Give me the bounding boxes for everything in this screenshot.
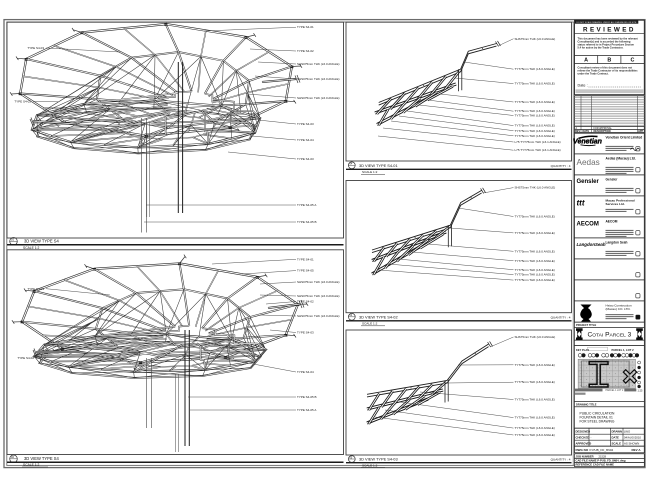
svg-text:TYT75mm THK (L6.0 ANGLE): TYT75mm THK (L6.0 ANGLE) xyxy=(515,268,555,272)
svg-text:AECOM: AECOM xyxy=(577,222,599,228)
svg-text:TYT75mm THK (L6.0 ANGLE): TYT75mm THK (L6.0 ANGLE) xyxy=(515,278,555,282)
svg-text:Services Ltd.: Services Ltd. xyxy=(606,202,625,206)
svg-text:PARCEL 1, LOT 2: PARCEL 1, LOT 2 xyxy=(612,348,635,352)
svg-text:DO NOT SCALE DRAWING. VERIFY A: DO NOT SCALE DRAWING. VERIFY ALL DIMENSI… xyxy=(577,21,637,24)
svg-text:CHECKED: CHECKED xyxy=(576,436,590,440)
svg-text:-: - xyxy=(591,442,592,446)
svg-text:Gensler: Gensler xyxy=(606,177,619,181)
svg-text:21528: 21528 xyxy=(599,454,607,458)
svg-text:SHS075mm THK (L6.0 ANGLE): SHS075mm THK (L6.0 ANGLE) xyxy=(297,314,339,318)
svg-text:REFERENCE CAD FILE NAME: REFERENCE CAD FILE NAME xyxy=(576,463,615,467)
svg-text:TYT75mm THK (L6.0 ANGLE): TYT75mm THK (L6.0 ANGLE) xyxy=(515,273,555,277)
svg-text:DATE: DATE xyxy=(612,436,620,440)
svg-text:A: A xyxy=(584,58,588,64)
svg-text:LangdonSeah: LangdonSeah xyxy=(577,242,606,247)
svg-text:TYPE S4-05 B: TYPE S4-05 B xyxy=(297,220,317,224)
svg-text:SHS075mm THK (L6.0 ANGLE): SHS075mm THK (L6.0 ANGLE) xyxy=(297,62,339,66)
svg-text:TYPE S4-03: TYPE S4-03 xyxy=(297,331,314,335)
svg-text:APPROVED: APPROVED xyxy=(576,442,592,446)
svg-text:TYPE S4-04: TYPE S4-04 xyxy=(297,370,314,374)
svg-text:TYPE S4-05: TYPE S4-05 xyxy=(297,269,314,273)
svg-text:COTAI PARCEL 3: COTAI PARCEL 3 xyxy=(587,331,631,338)
svg-text:SHS075mm THK (L6.0 ANGLE): SHS075mm THK (L6.0 ANGLE) xyxy=(297,280,339,284)
svg-text:04/AUG/2010: 04/AUG/2010 xyxy=(624,436,641,440)
svg-text:SCALE 1:2: SCALE 1:2 xyxy=(23,463,39,467)
svg-text:Date :: Date : xyxy=(578,84,588,88)
svg-text:TYT75mm THK (L6.0 ANGLE): TYT75mm THK (L6.0 ANGLE) xyxy=(515,249,555,253)
svg-text:SHS075mm THK (L6.0 ANGLE): SHS075mm THK (L6.0 ANGLE) xyxy=(297,77,339,81)
svg-text:TYPE S4-02: TYPE S4-02 xyxy=(17,356,34,360)
svg-text:Venetian Orient Limited: Venetian Orient Limited xyxy=(606,136,643,140)
svg-text:TYPE S4-02: TYPE S4-02 xyxy=(14,100,31,104)
svg-text:TYT75mm THK (L6.0 ANGLE): TYT75mm THK (L6.0 ANGLE) xyxy=(515,82,555,86)
svg-text:TYT75mm THK (L6.0 ANGLE): TYT75mm THK (L6.0 ANGLE) xyxy=(515,129,555,133)
svg-text:TYT75mm THK (L6.0 ANGLE): TYT75mm THK (L6.0 ANGLE) xyxy=(515,124,555,128)
svg-text:Langdon Seah: Langdon Seah xyxy=(606,240,628,244)
svg-text:(Macau) CO. LTD.: (Macau) CO. LTD. xyxy=(606,307,631,311)
svg-text:ttt: ttt xyxy=(577,199,585,208)
svg-text:TYT75mm THK (L6.0 ANGLE): TYT75mm THK (L6.0 ANGLE) xyxy=(515,114,555,118)
svg-text:SCALE 1:2: SCALE 1:2 xyxy=(362,170,378,174)
svg-text:PROJECT TITLE: PROJECT TITLE xyxy=(576,323,596,327)
svg-text:DRAWING TITLE: DRAWING TITLE xyxy=(576,403,597,407)
svg-text:-: - xyxy=(591,436,592,440)
svg-text:TYT75mm THK (L6.0 ANGLE): TYT75mm THK (L6.0 ANGLE) xyxy=(515,416,555,420)
svg-text:Aedas: Aedas xyxy=(577,158,600,167)
svg-text:TYT75mm THK (L6.0 ANGLE): TYT75mm THK (L6.0 ANGLE) xyxy=(515,426,555,430)
svg-text:TYT75mm THK (L6.0 ANGLE): TYT75mm THK (L6.0 ANGLE) xyxy=(515,134,555,138)
svg-text:QUANTITY : 4: QUANTITY : 4 xyxy=(551,315,571,319)
svg-text:SHS75mm THK (L6.0 ANGLE): SHS75mm THK (L6.0 ANGLE) xyxy=(515,335,556,339)
svg-text:L75 TYT75mm THK (L6.1 ANGLE): L75 TYT75mm THK (L6.1 ANGLE) xyxy=(515,140,561,144)
svg-text:SCALE 1:2: SCALE 1:2 xyxy=(23,246,39,250)
svg-text:P-PUB_FD_8N04: P-PUB_FD_8N04 xyxy=(590,448,614,452)
svg-text:QUANTITY : 4: QUANTITY : 4 xyxy=(551,164,571,168)
svg-text:REV A: REV A xyxy=(632,448,642,452)
svg-text:DATE: DATE xyxy=(583,130,590,133)
svg-text:Aedas (Macau) Ltd.: Aedas (Macau) Ltd. xyxy=(606,156,636,160)
svg-text:TYPE S4-03: TYPE S4-03 xyxy=(27,46,44,50)
svg-text:TYT75mm THK (L6.0 ANGLE): TYT75mm THK (L6.0 ANGLE) xyxy=(515,215,555,219)
svg-text:3D VIEW TYPE S4: 3D VIEW TYPE S4 xyxy=(24,456,59,461)
svg-text:KEY PLAN: KEY PLAN xyxy=(576,348,589,352)
svg-text:APP: APP xyxy=(638,130,643,133)
svg-text:TYPE S4-03: TYPE S4-03 xyxy=(27,287,44,291)
svg-text:DWG NO: DWG NO xyxy=(576,448,589,452)
svg-text:SHS075mm THK (L6.0 ANGLE): SHS075mm THK (L6.0 ANGLE) xyxy=(297,96,339,100)
svg-text:SHS75mm THK (L6.0 ANGLE): SHS75mm THK (L6.0 ANGLE) xyxy=(515,186,556,190)
svg-text:TYT75mm THK (L6.0 ANGLE): TYT75mm THK (L6.0 ANGLE) xyxy=(515,398,555,402)
svg-text:LWO: LWO xyxy=(624,430,631,434)
svg-text:C: C xyxy=(631,58,635,64)
svg-text:SCALE 1:2: SCALE 1:2 xyxy=(362,463,378,467)
svg-text:TYPE S4-03: TYPE S4-03 xyxy=(297,122,314,126)
svg-text:3D VIEW TYPE S4-01: 3D VIEW TYPE S4-01 xyxy=(359,163,398,168)
svg-text:02: 02 xyxy=(11,455,14,459)
svg-text:TYT75mm THK (L6.0 ANGLE): TYT75mm THK (L6.0 ANGLE) xyxy=(515,433,555,437)
svg-text:3D VIEW TYPE S4-02: 3D VIEW TYPE S4-02 xyxy=(359,314,398,319)
svg-text:TYT75mm THK (L6.0 ANGLE): TYT75mm THK (L6.0 ANGLE) xyxy=(515,363,555,367)
svg-text:B: B xyxy=(607,58,611,64)
svg-text:AECOM: AECOM xyxy=(606,219,618,223)
svg-text:Gensler: Gensler xyxy=(577,179,600,185)
svg-text:TYT75mm THK (L6.0 ANGLE): TYT75mm THK (L6.0 ANGLE) xyxy=(515,259,555,263)
svg-text:TYPE S4-05 B: TYPE S4-05 B xyxy=(297,395,317,399)
svg-text:REVIEWED: REVIEWED xyxy=(583,26,636,33)
svg-text:AS SHOWN: AS SHOWN xyxy=(624,442,639,446)
svg-text:3D VIEW TYPE S4-03: 3D VIEW TYPE S4-03 xyxy=(359,457,398,462)
svg-text:DRAWN: DRAWN xyxy=(612,430,623,434)
svg-text:CAD FILE NAME P-PUB_FD_8N04_d: CAD FILE NAME P-PUB_FD_8N04_dwg xyxy=(576,459,626,463)
svg-text:QUANTITY : 4: QUANTITY : 4 xyxy=(551,458,571,462)
svg-text:SCALE: SCALE xyxy=(612,442,622,446)
svg-text:5.4 for action by the Trade Co: 5.4 for action by the Trade Contractor. xyxy=(578,45,624,49)
svg-text:REV: REV xyxy=(575,130,580,133)
svg-text:Venetian: Venetian xyxy=(573,139,602,146)
svg-text:SHS75mm THK (L6.0 ANGLE): SHS75mm THK (L6.0 ANGLE) xyxy=(515,37,556,41)
svg-text:DESCRIPTION: DESCRIPTION xyxy=(594,130,611,133)
svg-text:TYPE S4-04: TYPE S4-04 xyxy=(297,138,314,142)
svg-text:TYPE S4-02: TYPE S4-02 xyxy=(297,49,314,53)
svg-text:TYT75mm THK (L6.0 ANGLE): TYT75mm THK (L6.0 ANGLE) xyxy=(515,380,555,384)
svg-text:SCALE 1:2: SCALE 1:2 xyxy=(362,322,378,326)
svg-text:TYPE S4-02: TYPE S4-02 xyxy=(297,300,314,304)
svg-text:TYT75mm THK (L6.0 ANGLE): TYT75mm THK (L6.0 ANGLE) xyxy=(515,100,555,104)
svg-text:DESIGNED: DESIGNED xyxy=(576,430,591,434)
svg-text:TYPE S4-03: TYPE S4-03 xyxy=(297,157,314,161)
svg-text:FOR STEEL DRAWING: FOR STEEL DRAWING xyxy=(580,420,615,424)
svg-text:SHS075mm THK (L6.0 ANGLE): SHS075mm THK (L6.0 ANGLE) xyxy=(297,294,339,298)
svg-text:JOB NUMBER: JOB NUMBER xyxy=(576,454,594,458)
svg-text:TYPE S4-05 A: TYPE S4-05 A xyxy=(297,408,316,412)
svg-text:TYPE S4-01: TYPE S4-01 xyxy=(297,257,314,261)
svg-text:1:25: 1:25 xyxy=(638,389,643,392)
svg-text:3D VIEW TYPE S4: 3D VIEW TYPE S4 xyxy=(24,238,59,243)
svg-text:PARCEL 1 LOT 2: PARCEL 1 LOT 2 xyxy=(606,389,625,392)
svg-text:TYPE S4-05 A: TYPE S4-05 A xyxy=(297,203,316,207)
svg-text:TYT75mm THK (L6.0 ANGLE): TYT75mm THK (L6.0 ANGLE) xyxy=(515,231,555,235)
svg-text:L75 TYT75mm THK (L6.1 ANGLE): L75 TYT75mm THK (L6.1 ANGLE) xyxy=(515,148,561,152)
svg-text:TYT75mm THK (L6.0 ANGLE): TYT75mm THK (L6.0 ANGLE) xyxy=(515,67,555,71)
svg-text:TYPE S4-01: TYPE S4-01 xyxy=(297,25,314,29)
svg-text:under the Trade Contract.: under the Trade Contract. xyxy=(578,72,609,76)
